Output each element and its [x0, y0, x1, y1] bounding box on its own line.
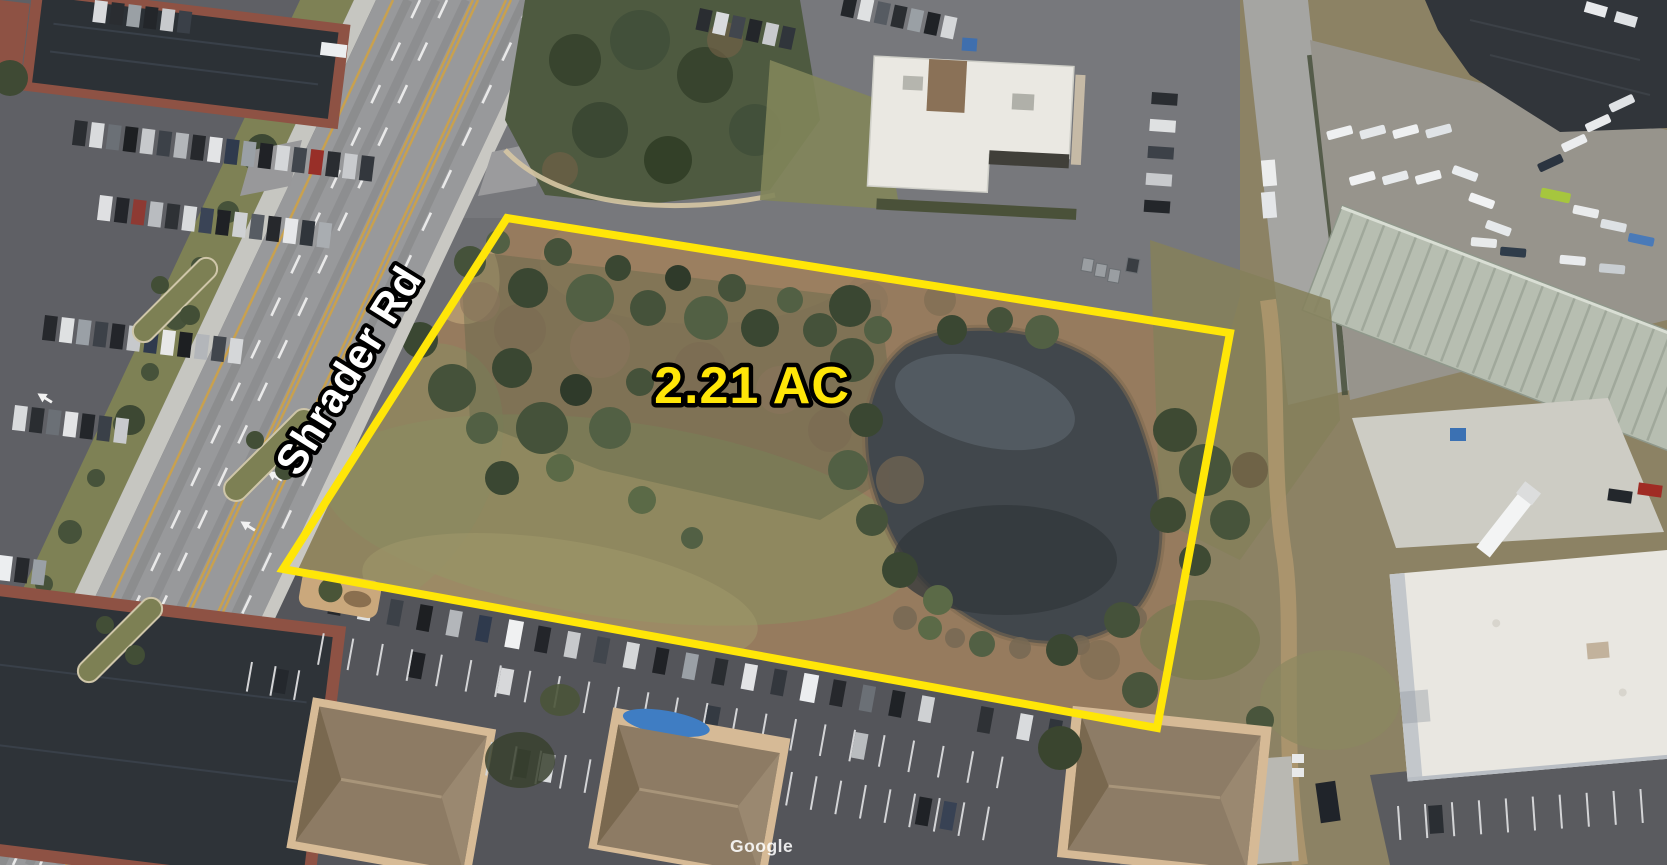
blue-dumpster	[1450, 428, 1466, 441]
dumpster	[962, 38, 978, 52]
google-watermark: Google	[730, 836, 793, 856]
acreage-label: 2.21 AC	[654, 357, 850, 415]
aerial-map: Shrader Rd 2.21 AC Google	[0, 0, 1667, 865]
office-condo-3	[1057, 706, 1272, 865]
aerial-scene: Shrader Rd 2.21 AC Google	[0, 0, 1667, 865]
tree	[540, 684, 580, 716]
tree	[485, 732, 555, 788]
white-warehouse	[1390, 549, 1667, 781]
loading-pad	[1352, 398, 1664, 558]
tree	[1038, 726, 1082, 770]
